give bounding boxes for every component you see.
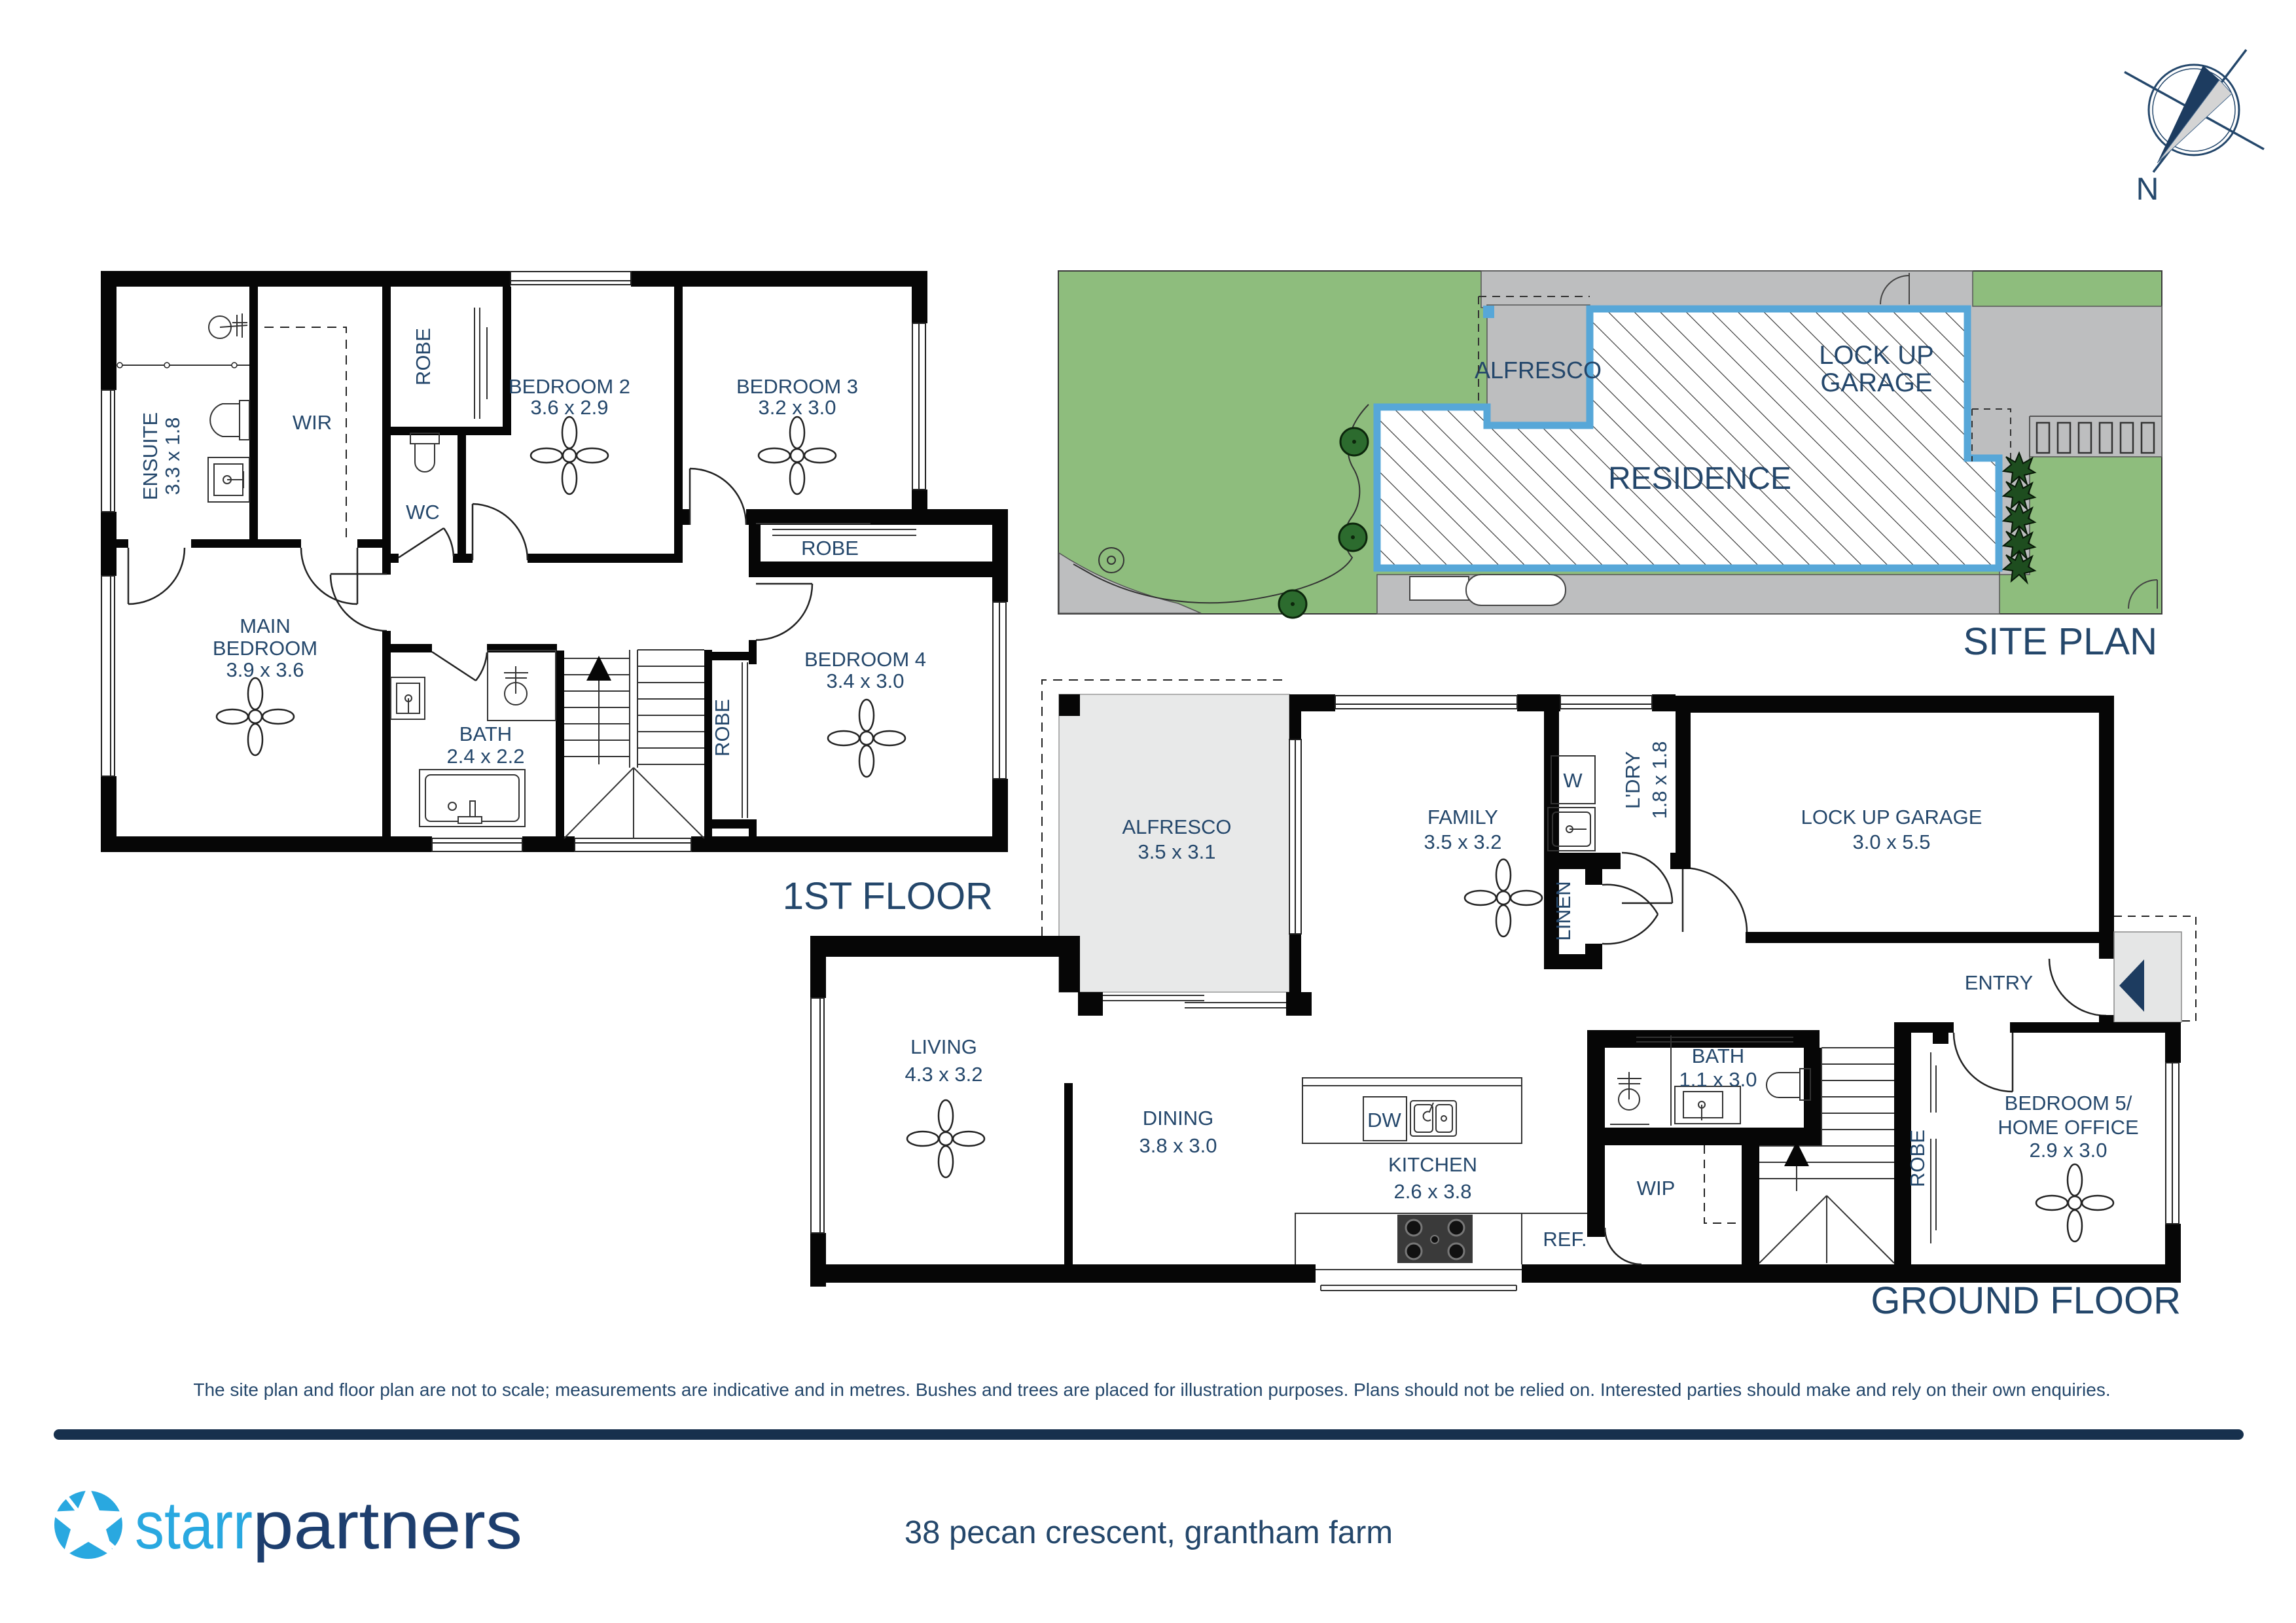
- svg-text:SITE PLAN: SITE PLAN: [1963, 620, 2157, 663]
- svg-text:ROBE: ROBE: [1906, 1130, 1929, 1187]
- svg-text:2.9 x 3.0: 2.9 x 3.0: [2030, 1139, 2108, 1162]
- svg-text:1.8 x 1.8: 1.8 x 1.8: [1648, 741, 1671, 819]
- svg-text:3.9 x 3.6: 3.9 x 3.6: [226, 658, 304, 681]
- svg-text:BEDROOM: BEDROOM: [213, 637, 317, 660]
- svg-text:1.1 x 3.0: 1.1 x 3.0: [1679, 1068, 1757, 1091]
- svg-text:ROBE: ROBE: [801, 537, 859, 560]
- svg-text:WC: WC: [406, 501, 440, 524]
- svg-text:LOCK UP: LOCK UP: [1819, 341, 1934, 370]
- svg-text:3.4 x 3.0: 3.4 x 3.0: [827, 669, 905, 692]
- svg-text:3.5 x 3.2: 3.5 x 3.2: [1424, 830, 1502, 853]
- svg-text:N: N: [2136, 172, 2159, 207]
- svg-text:WIP: WIP: [1637, 1177, 1676, 1200]
- svg-text:4.3 x 3.2: 4.3 x 3.2: [905, 1063, 983, 1086]
- svg-text:WIR: WIR: [293, 411, 332, 434]
- svg-text:3.0 x 5.5: 3.0 x 5.5: [1853, 830, 1931, 853]
- svg-text:ROBE: ROBE: [412, 328, 435, 385]
- svg-text:BEDROOM 3: BEDROOM 3: [736, 375, 858, 398]
- svg-text:starr: starr: [135, 1488, 253, 1563]
- svg-text:LINEN: LINEN: [1552, 881, 1575, 940]
- svg-text:W: W: [1563, 769, 1583, 792]
- svg-text:ENTRY: ENTRY: [1965, 971, 2034, 994]
- svg-text:BEDROOM 5/: BEDROOM 5/: [2005, 1092, 2132, 1115]
- svg-text:ALFRESCO: ALFRESCO: [1122, 815, 1231, 838]
- svg-text:DINING: DINING: [1143, 1107, 1214, 1130]
- svg-text:KITCHEN: KITCHEN: [1388, 1153, 1477, 1176]
- svg-text:3.8 x 3.0: 3.8 x 3.0: [1139, 1134, 1217, 1157]
- svg-text:3.6 x 2.9: 3.6 x 2.9: [531, 396, 609, 419]
- svg-text:ALFRESCO: ALFRESCO: [1475, 357, 1602, 383]
- svg-text:BEDROOM 4: BEDROOM 4: [804, 648, 926, 671]
- svg-text:HOME OFFICE: HOME OFFICE: [1998, 1116, 2138, 1139]
- svg-text:LOCK UP GARAGE: LOCK UP GARAGE: [1801, 806, 1982, 829]
- svg-text:38 pecan crescent, grantham fa: 38 pecan crescent, grantham farm: [905, 1515, 1393, 1550]
- svg-text:MAIN: MAIN: [240, 615, 291, 637]
- svg-text:GARAGE: GARAGE: [1820, 368, 1932, 397]
- svg-text:BATH: BATH: [459, 722, 512, 745]
- svg-text:partners: partners: [253, 1488, 522, 1563]
- svg-text:ROBE: ROBE: [711, 699, 734, 757]
- svg-text:L'DRY: L'DRY: [1621, 751, 1644, 809]
- svg-text:1ST FLOOR: 1ST FLOOR: [783, 875, 993, 918]
- svg-text:3.2 x 3.0: 3.2 x 3.0: [759, 396, 836, 419]
- svg-text:BEDROOM 2: BEDROOM 2: [509, 375, 630, 398]
- svg-text:RESIDENCE: RESIDENCE: [1608, 461, 1791, 496]
- svg-text:ENSUITE: ENSUITE: [139, 412, 162, 500]
- svg-text:BATH: BATH: [1692, 1044, 1744, 1067]
- svg-text:GROUND FLOOR: GROUND FLOOR: [1871, 1279, 2181, 1322]
- svg-text:FAMILY: FAMILY: [1427, 806, 1498, 829]
- svg-text:3.5 x 3.1: 3.5 x 3.1: [1138, 840, 1216, 863]
- svg-text:DW: DW: [1367, 1109, 1401, 1132]
- svg-text:2.4 x 2.2: 2.4 x 2.2: [447, 745, 525, 768]
- svg-text:2.6 x 3.8: 2.6 x 3.8: [1394, 1180, 1472, 1203]
- svg-text:The site plan and floor plan a: The site plan and floor plan are not to …: [193, 1380, 2110, 1400]
- svg-text:REF.: REF.: [1543, 1228, 1587, 1251]
- svg-text:LIVING: LIVING: [910, 1035, 977, 1058]
- svg-text:3.3 x 1.8: 3.3 x 1.8: [161, 418, 184, 495]
